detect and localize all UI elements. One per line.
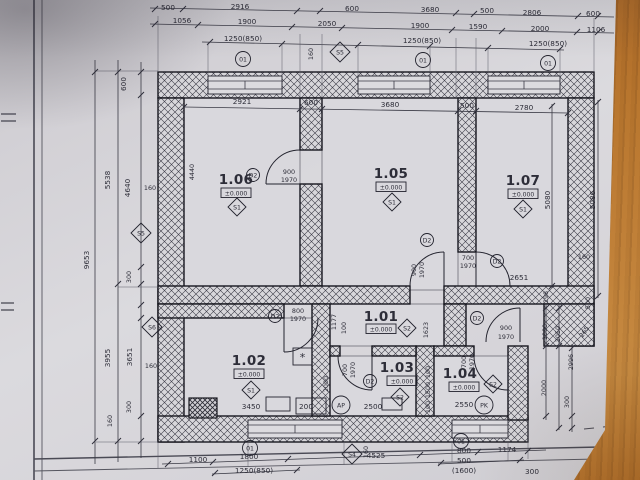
- dim-label: 2780: [515, 103, 534, 112]
- dim-label: 3955: [103, 349, 112, 368]
- dim-label: 3680: [381, 100, 400, 109]
- dim-label: 2000: [322, 376, 330, 392]
- door-size-label: 800: [292, 307, 304, 315]
- dim-label: 500: [584, 297, 592, 309]
- dim-label: 2916: [231, 2, 250, 11]
- dim-label: 1500: [424, 382, 432, 398]
- boiler-label: PK: [480, 403, 489, 410]
- floor-mark: S1: [247, 388, 255, 395]
- door-size-label: 1970: [281, 176, 297, 184]
- dim-label: 1000: [541, 324, 549, 340]
- room-number: 1.04: [443, 366, 478, 382]
- dim-label: 300: [525, 467, 539, 476]
- window-bottom-1: [248, 420, 342, 438]
- level-label: ±0.000: [453, 385, 476, 392]
- dim-label: 100: [424, 366, 432, 378]
- dim-label: 1177: [330, 314, 338, 330]
- window-top-1: [208, 76, 282, 94]
- floor-mark: S1: [519, 207, 527, 214]
- dim-label: 298: [542, 291, 550, 303]
- dim-label: 500: [480, 6, 494, 15]
- dim-label: 5538: [103, 170, 112, 189]
- dim-label: 2651: [510, 273, 529, 282]
- dim-label: 300: [125, 271, 133, 283]
- dim-label: 500: [457, 456, 471, 465]
- left-dimension-labels: 600 5538 4640 160 9653 300 3955 3651 160…: [82, 77, 157, 427]
- door-type-badge: D2: [366, 379, 375, 386]
- window-top-2: [358, 76, 430, 94]
- chimney-symbol: [189, 398, 217, 418]
- level-label: ±0.000: [391, 379, 414, 386]
- door-size-label: 1970: [349, 362, 357, 378]
- door-size-label: 1970: [418, 262, 426, 278]
- dim-label: 500: [161, 3, 175, 12]
- level-label: ±0.000: [370, 327, 393, 334]
- window-type-badge: 01: [544, 61, 552, 68]
- door-size-label: 1970: [290, 315, 306, 323]
- desk-surface: * AP PK: [0, 0, 640, 480]
- dim-label: 600: [119, 77, 128, 91]
- dim-label: 100: [340, 322, 348, 334]
- floor-plan-drawing: * AP PK: [0, 0, 640, 480]
- window-top-3: [488, 76, 560, 94]
- dim-label: 2000: [531, 24, 550, 33]
- dim-label: 2996: [567, 354, 575, 370]
- dim-label: 1100: [189, 455, 208, 464]
- dim-label: (1600): [452, 466, 476, 475]
- door-size-label: 900: [283, 168, 295, 176]
- dim-label: 160: [145, 362, 157, 370]
- door-size-label: 700: [341, 364, 349, 376]
- window-type-badge: 01: [239, 57, 247, 64]
- dim-label: 3651: [125, 348, 134, 367]
- level-label: ±0.000: [380, 185, 403, 192]
- window-size-label: 1250(850): [224, 34, 262, 43]
- dim-label: 2000: [540, 380, 548, 396]
- door-size-label: 700: [462, 254, 474, 262]
- window-size-label: 1250(850): [529, 39, 567, 48]
- floor-mark: S2: [403, 326, 411, 333]
- dim-label: 600: [586, 9, 600, 18]
- door-type-badge: D2: [493, 259, 502, 266]
- door-size-label: 900: [500, 324, 512, 332]
- dim-label: 4440: [188, 164, 196, 180]
- room-number: 1.05: [374, 166, 409, 182]
- dim-label: 800: [457, 446, 471, 455]
- room-number: 1.02: [232, 353, 267, 369]
- room-number: 1.03: [380, 360, 415, 376]
- dim-label: 1900: [238, 17, 257, 26]
- dim-label: 2806: [523, 8, 542, 17]
- dim-label: 1174: [498, 445, 517, 454]
- section-mark: S6: [148, 325, 156, 332]
- window-bottom-2: [452, 420, 508, 438]
- floor-mark: S2: [396, 395, 404, 402]
- room-number: 1.07: [506, 173, 541, 189]
- dim-label: 500: [460, 101, 474, 110]
- dim-label: 1800: [240, 452, 259, 461]
- dim-label: 3680: [421, 5, 440, 14]
- dim-label: 160: [144, 184, 156, 192]
- dim-label: 1623: [422, 322, 430, 338]
- dim-label: 1590: [469, 22, 488, 31]
- dim-label: 600: [304, 98, 318, 107]
- level-label: ±0.000: [512, 192, 535, 199]
- dim-label: 2050: [554, 326, 562, 342]
- level-label: ±0.000: [225, 191, 248, 198]
- floor-mark: S2: [489, 382, 497, 389]
- section-mark: S4: [348, 452, 356, 459]
- window-size-label: 1250(850): [235, 466, 273, 475]
- dim-label: 2050: [318, 19, 337, 28]
- dim-label: 160: [578, 253, 590, 261]
- door-size-label: 1970: [460, 262, 476, 270]
- door-type-badge: D2: [423, 238, 432, 245]
- dim-label: 4640: [123, 178, 132, 197]
- section-mark: S5: [336, 50, 344, 57]
- door-type-badge: D2: [271, 314, 280, 321]
- window-type-badge: 01: [457, 439, 465, 446]
- dim-label: 1900: [411, 21, 430, 30]
- drawing-sheet: * AP PK: [0, 0, 640, 480]
- dim-label: 300: [125, 401, 133, 413]
- dim-label: 4525: [367, 451, 386, 460]
- door-size-label: 1970: [498, 333, 514, 341]
- dim-label: 1106: [587, 25, 606, 34]
- level-label: ±0.000: [238, 372, 261, 379]
- dim-label: 100: [424, 401, 432, 413]
- dim-label: 160: [106, 415, 114, 427]
- dim-label: 300: [563, 396, 571, 408]
- door-type-badge: D2: [473, 316, 482, 323]
- room-number: 1.01: [364, 309, 399, 325]
- dim-label: 2550: [455, 400, 474, 409]
- washer-label: AP: [337, 403, 345, 410]
- floor-mark: S1: [233, 205, 241, 212]
- dim-label: 5086: [588, 190, 597, 209]
- room-1-05-area: [322, 98, 458, 290]
- door-size-label: 900: [410, 264, 418, 276]
- dim-label: 3450: [242, 402, 261, 411]
- room-number: 1.06: [219, 172, 254, 188]
- dim-label: 200: [299, 402, 313, 411]
- dim-label: 2921: [233, 97, 252, 106]
- window-size-label: 1250(850): [403, 36, 441, 45]
- section-mark: S5: [137, 231, 145, 238]
- dim-label: 600: [345, 4, 359, 13]
- dim-label: 160: [307, 48, 315, 60]
- floor-mark: S1: [388, 200, 396, 207]
- dim-label: 9653: [82, 250, 91, 269]
- dim-label: 5080: [543, 190, 552, 209]
- dim-label: 2500: [364, 402, 383, 411]
- window-type-badge: 01: [419, 58, 427, 65]
- note-asterisk: *: [300, 351, 306, 364]
- dim-label: 1056: [173, 16, 192, 25]
